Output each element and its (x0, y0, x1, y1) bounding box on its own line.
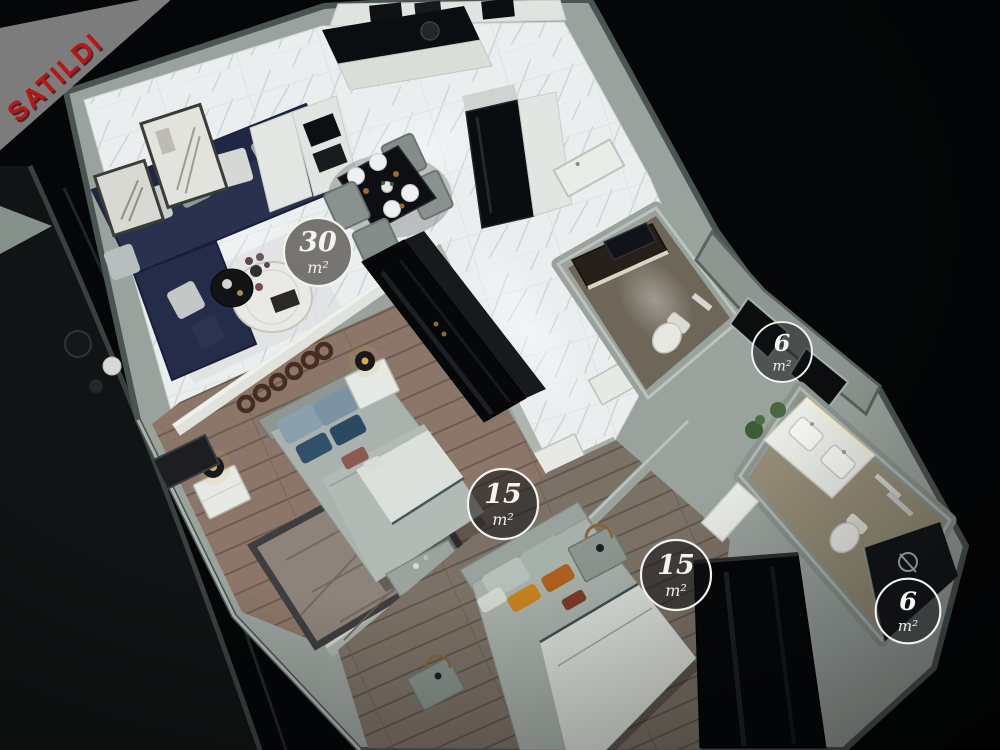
badge-unit: m² (665, 581, 687, 600)
floorplan-canvas: 30 m² 6 m² 15 m² 15 m² 6 m² SATILDI SATI… (0, 0, 1000, 750)
vignette-overlay (0, 0, 1000, 750)
area-badge-bathroom-2: 6 m² (876, 579, 941, 644)
badge-unit: m² (307, 258, 329, 277)
badge-value: 6 (774, 329, 791, 357)
badge-value: 15 (484, 479, 522, 510)
floorplan-screenshot: 30 m² 6 m² 15 m² 15 m² 6 m² SATILDI SATI… (0, 0, 1000, 750)
area-badge-bedroom-1: 15 m² (468, 469, 538, 539)
area-badge-bathroom-1: 6 m² (752, 322, 812, 382)
badge-unit: m² (773, 358, 792, 374)
badge-value: 6 (899, 587, 917, 617)
badge-unit: m² (492, 510, 514, 529)
badge-value: 15 (657, 550, 695, 581)
badge-value: 30 (299, 227, 337, 258)
badge-unit: m² (898, 617, 919, 635)
area-badge-living-kitchen: 30 m² (284, 218, 352, 286)
area-badge-bedroom-2: 15 m² (641, 540, 711, 610)
